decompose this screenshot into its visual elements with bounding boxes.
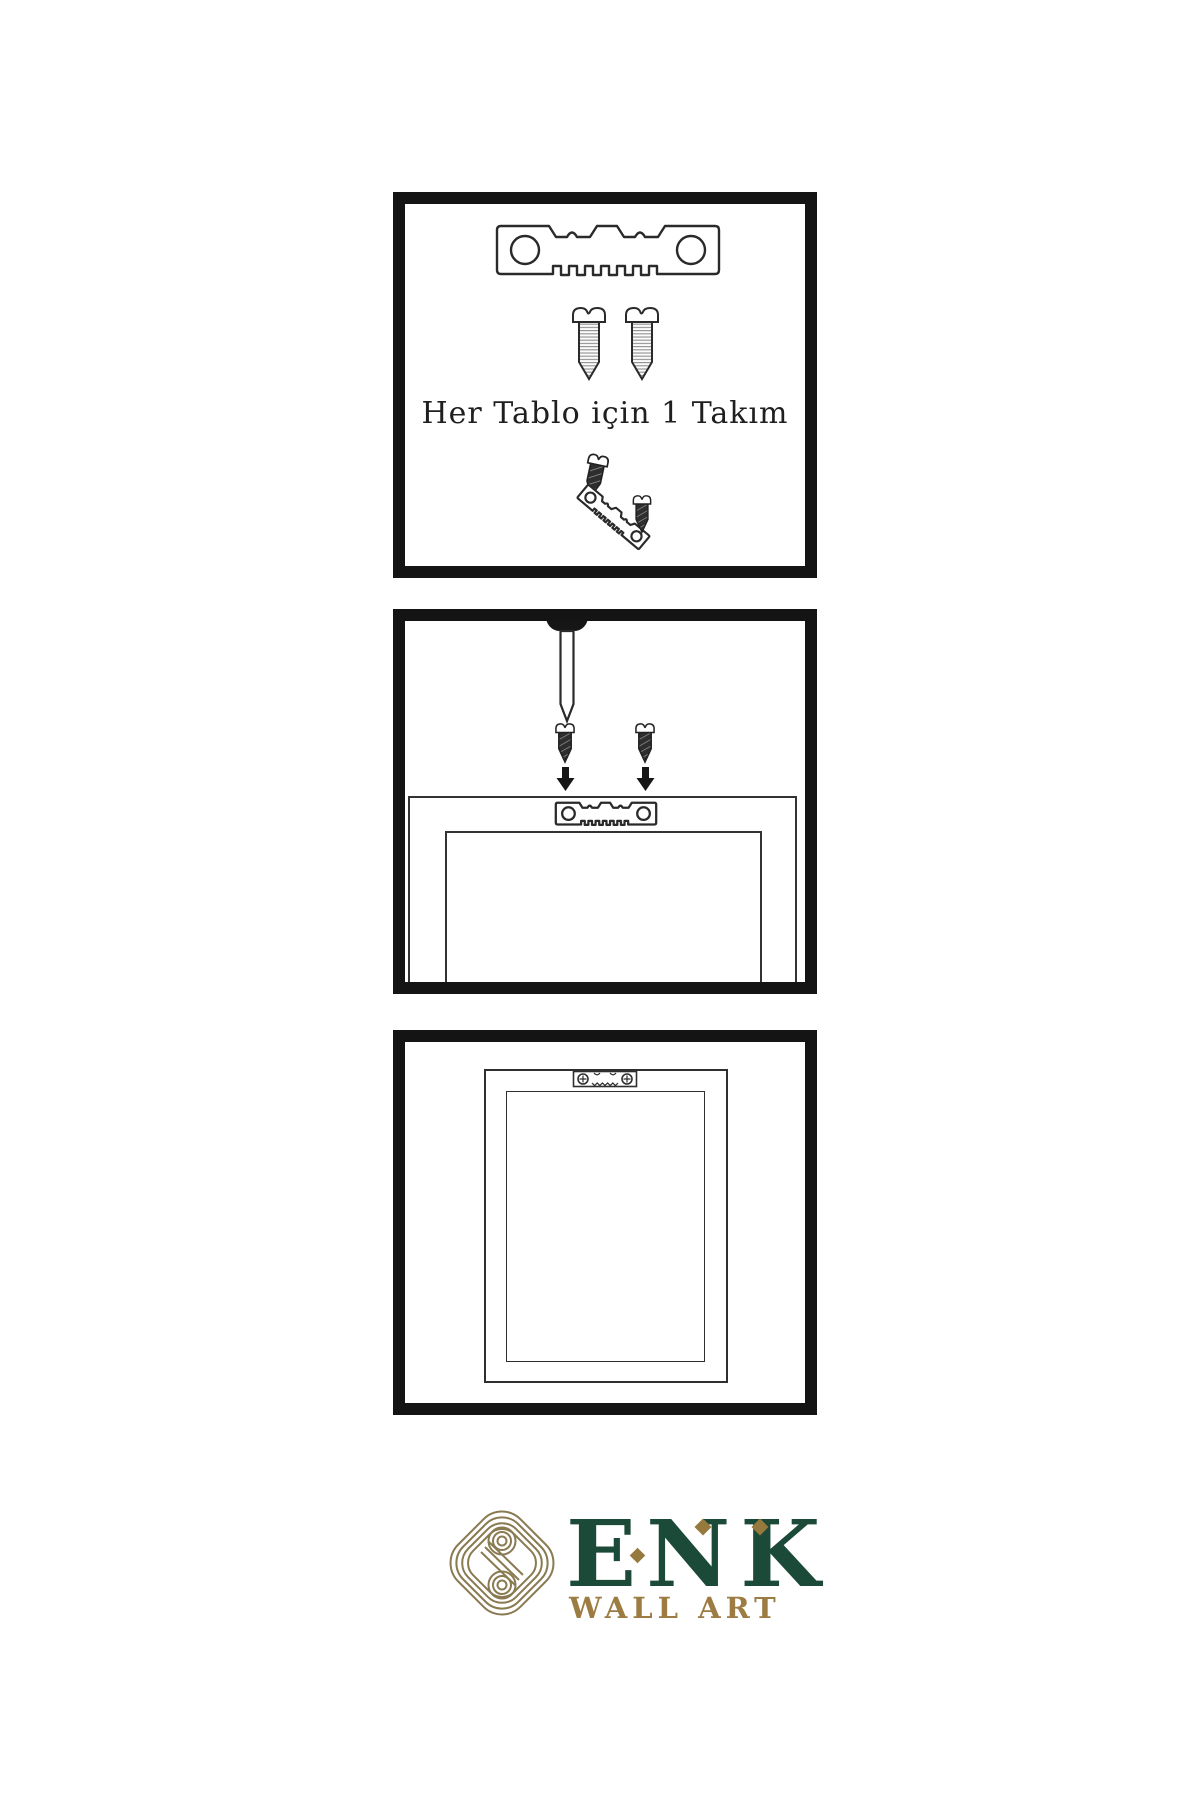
instruction-sheet: Her Tablo için 1 Takım [0, 0, 1200, 1800]
installed-sawtooth-hanger-icon [572, 1070, 638, 1088]
sawtooth-hanger-icon [493, 223, 723, 281]
panel-hung-frame [393, 1030, 817, 1415]
panel-mounting-step [393, 609, 817, 994]
wall-nail-icon [545, 618, 589, 724]
screw-icon [624, 304, 660, 382]
picture-frame-inner-outline [506, 1091, 705, 1362]
screw-icon-dark [554, 722, 576, 764]
screw-icon-dark [632, 494, 652, 534]
down-arrow-icon [636, 767, 655, 791]
brand-subtitle: WALL ART [569, 1594, 781, 1623]
kit-caption: Her Tablo için 1 Takım [405, 396, 805, 431]
knot-icon [440, 1496, 564, 1630]
down-arrow-icon [556, 767, 575, 791]
screw-icon [571, 304, 607, 382]
screw-icon-dark [634, 722, 656, 764]
frame-back-inner-outline [445, 831, 762, 994]
panel-kit-contents: Her Tablo için 1 Takım [393, 192, 817, 578]
sawtooth-hanger-icon [554, 801, 658, 828]
